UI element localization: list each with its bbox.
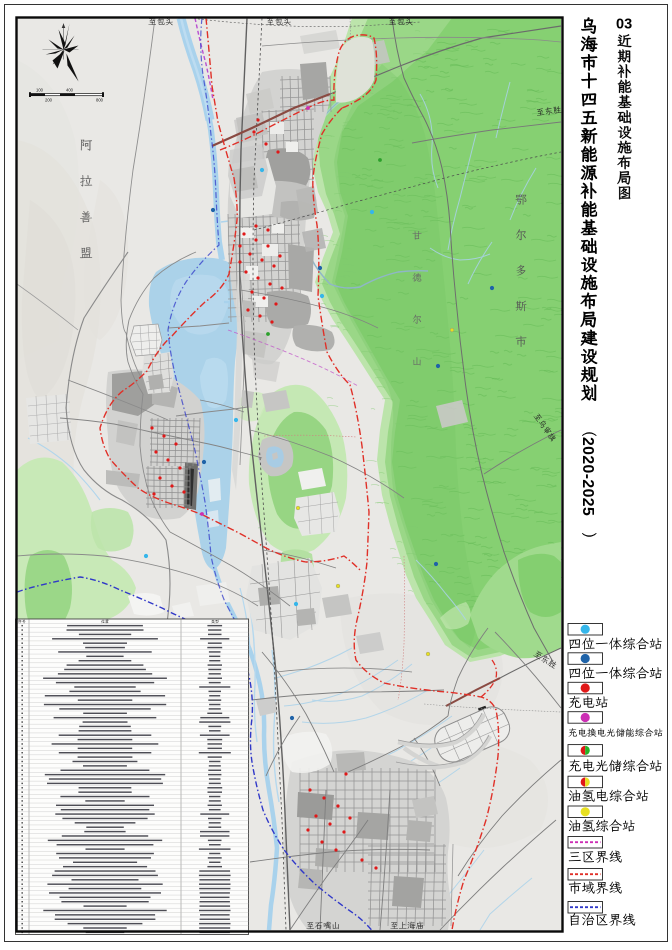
svg-text:800: 800 xyxy=(96,98,104,103)
svg-text:100: 100 xyxy=(36,88,44,93)
svg-text:03: 03 xyxy=(616,17,632,33)
svg-text:400: 400 xyxy=(66,88,74,93)
svg-text:200: 200 xyxy=(45,98,53,103)
svg-text:2020-2025: 2020-2025 xyxy=(579,437,596,516)
